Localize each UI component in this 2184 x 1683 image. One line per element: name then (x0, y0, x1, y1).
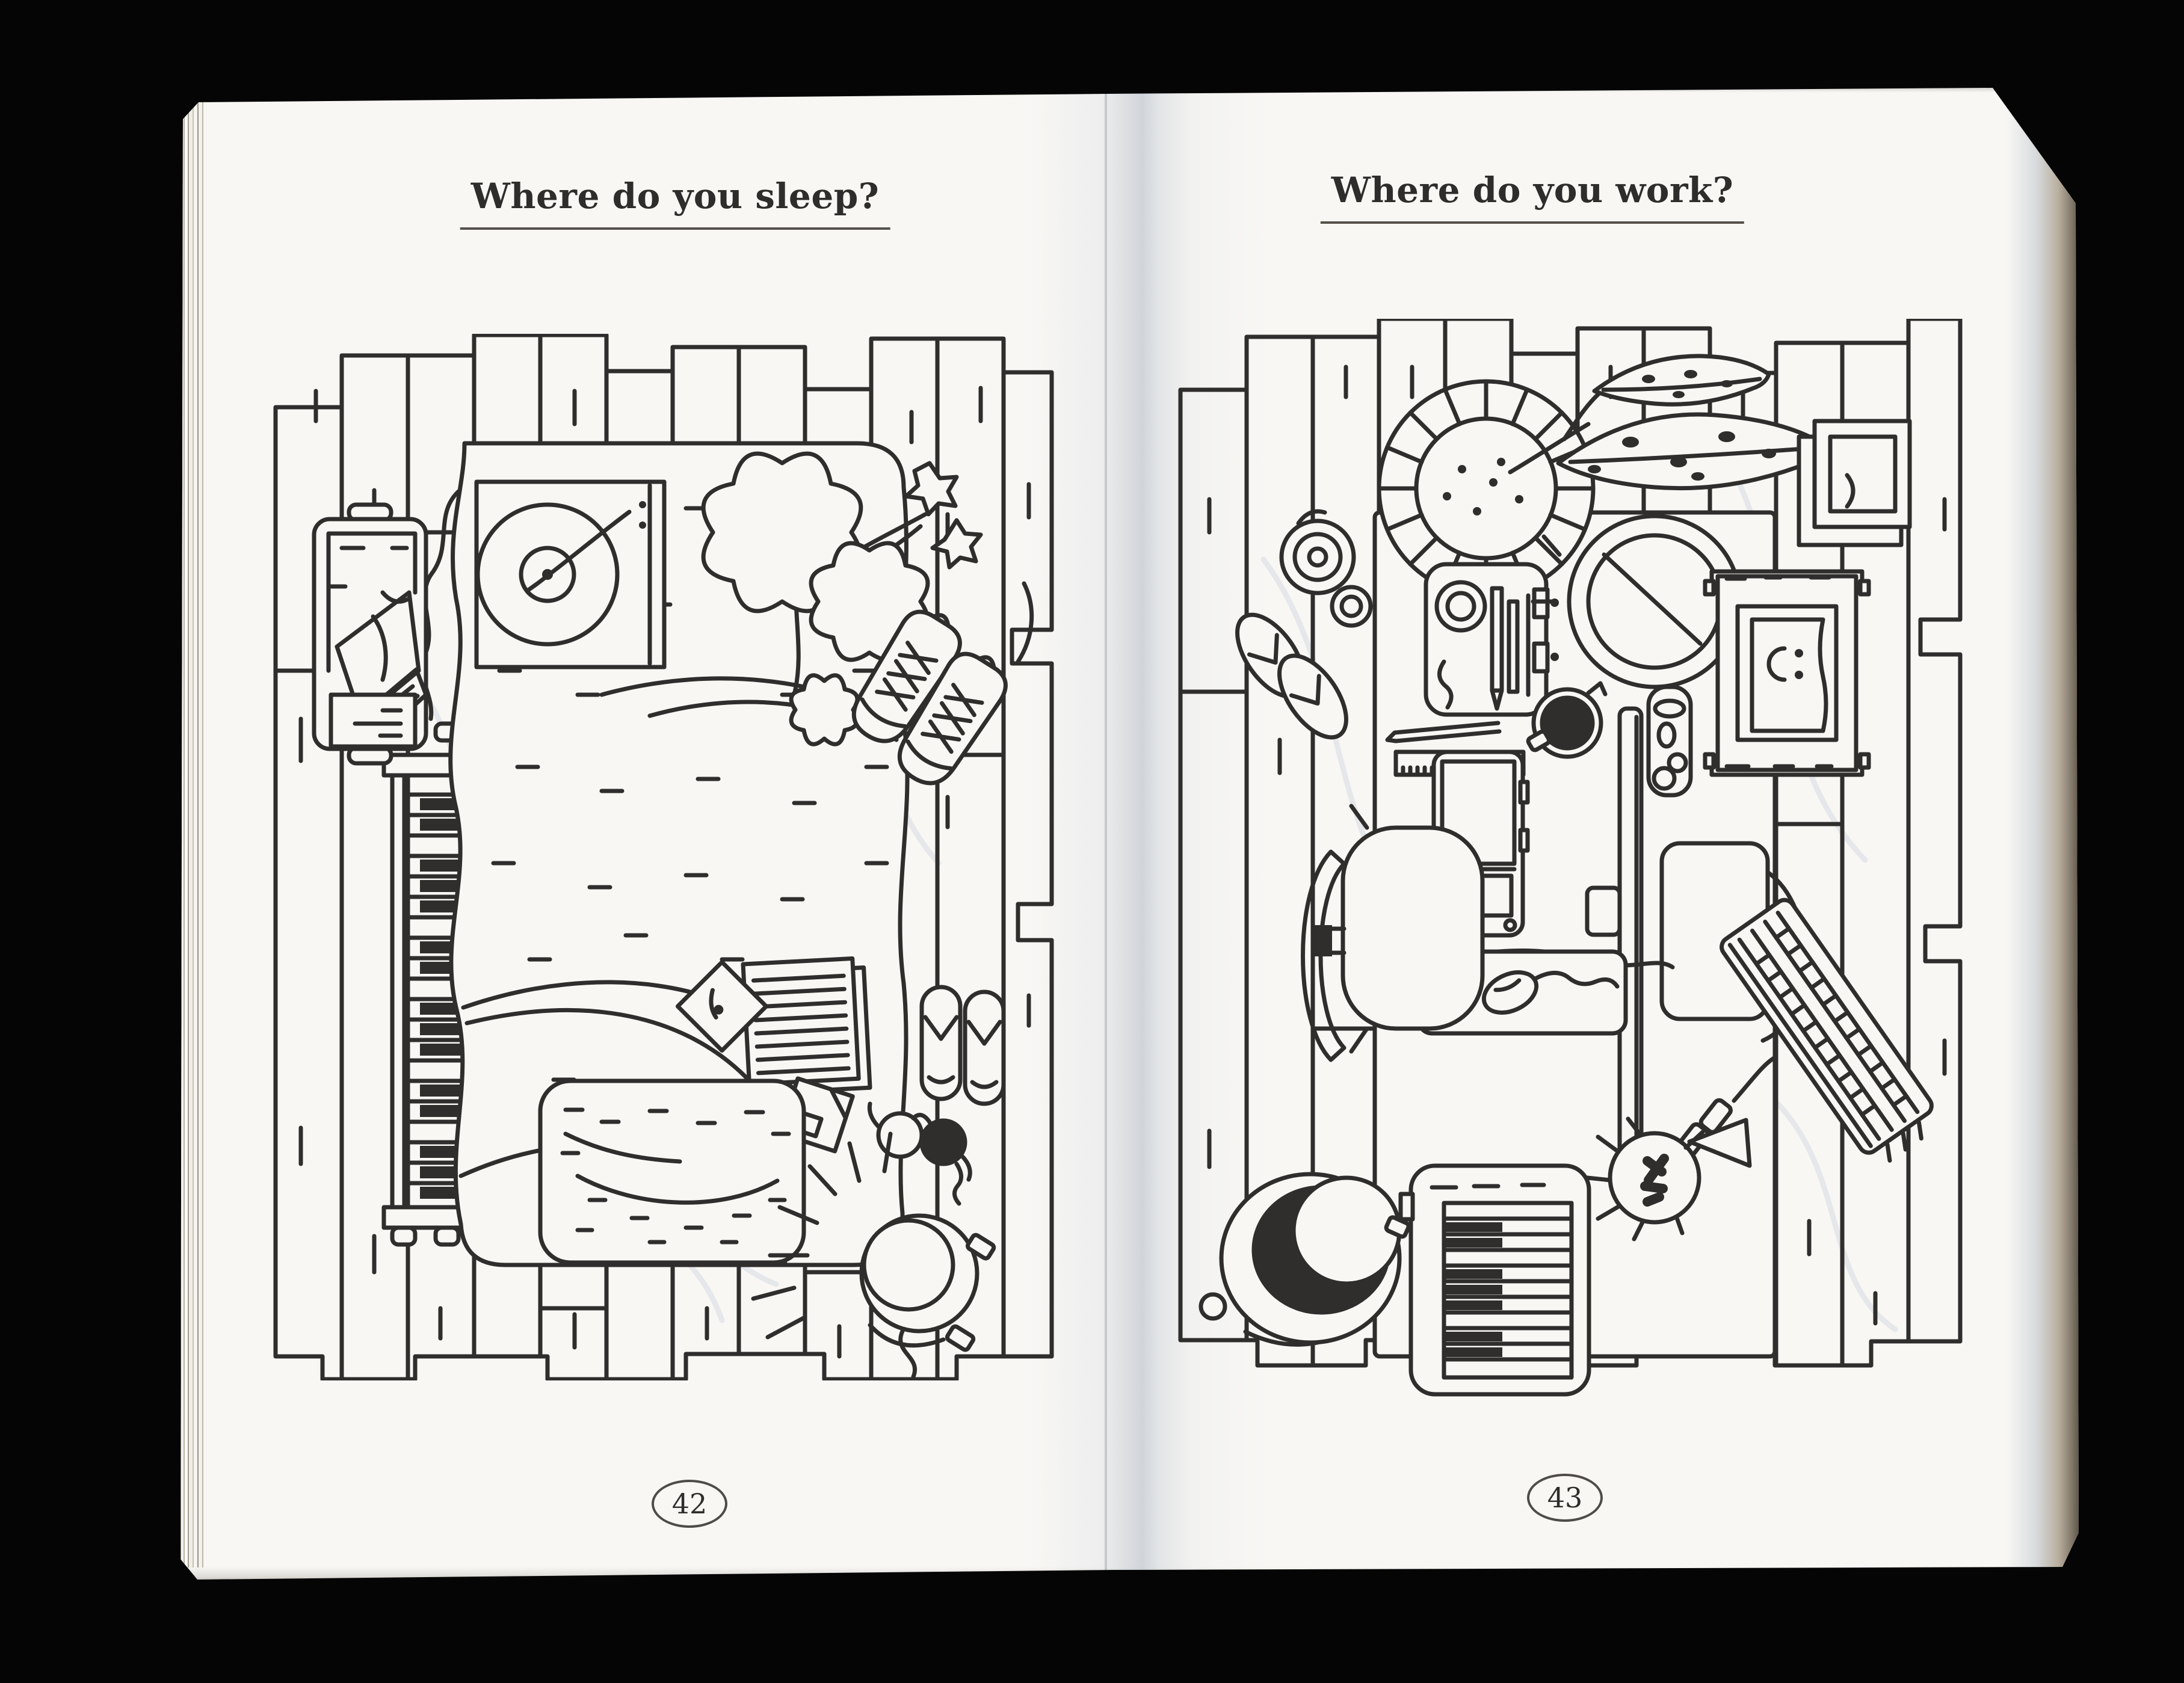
slippers (922, 987, 1004, 1104)
right-page-title: Where do you work? (1321, 170, 1744, 224)
laundry-basket (314, 505, 426, 763)
pencil-cup (1426, 564, 1559, 715)
fore-edge (2007, 84, 2079, 1585)
notebook (743, 958, 870, 1094)
workspace-illustration (1173, 319, 1967, 1401)
top-page-edge (187, 84, 2064, 93)
book-photo: Where do you sleep? Where do you work? (0, 0, 2184, 1683)
midi-keyboard (1401, 1166, 1589, 1394)
spine-gutter-line (1105, 94, 1107, 1570)
left-page-title: Where do you sleep? (460, 176, 890, 230)
left-page-number: 42 (652, 1480, 727, 1528)
bedroom-illustration (265, 334, 1059, 1380)
rug (540, 1081, 804, 1263)
bottom-page-edge (180, 1567, 2070, 1585)
page-number-text: 42 (672, 1488, 708, 1520)
office-chair (1303, 806, 1483, 1060)
flip-flops (1224, 603, 1359, 749)
page-stack-edge (179, 100, 207, 1568)
usb-hub (1649, 687, 1691, 795)
paper-trays (1799, 421, 1910, 545)
page-number-text: 43 (1547, 1481, 1583, 1514)
leaves (1558, 356, 1821, 488)
record-player (477, 482, 664, 667)
printer (1705, 571, 1869, 775)
right-page-number: 43 (1527, 1474, 1603, 1522)
